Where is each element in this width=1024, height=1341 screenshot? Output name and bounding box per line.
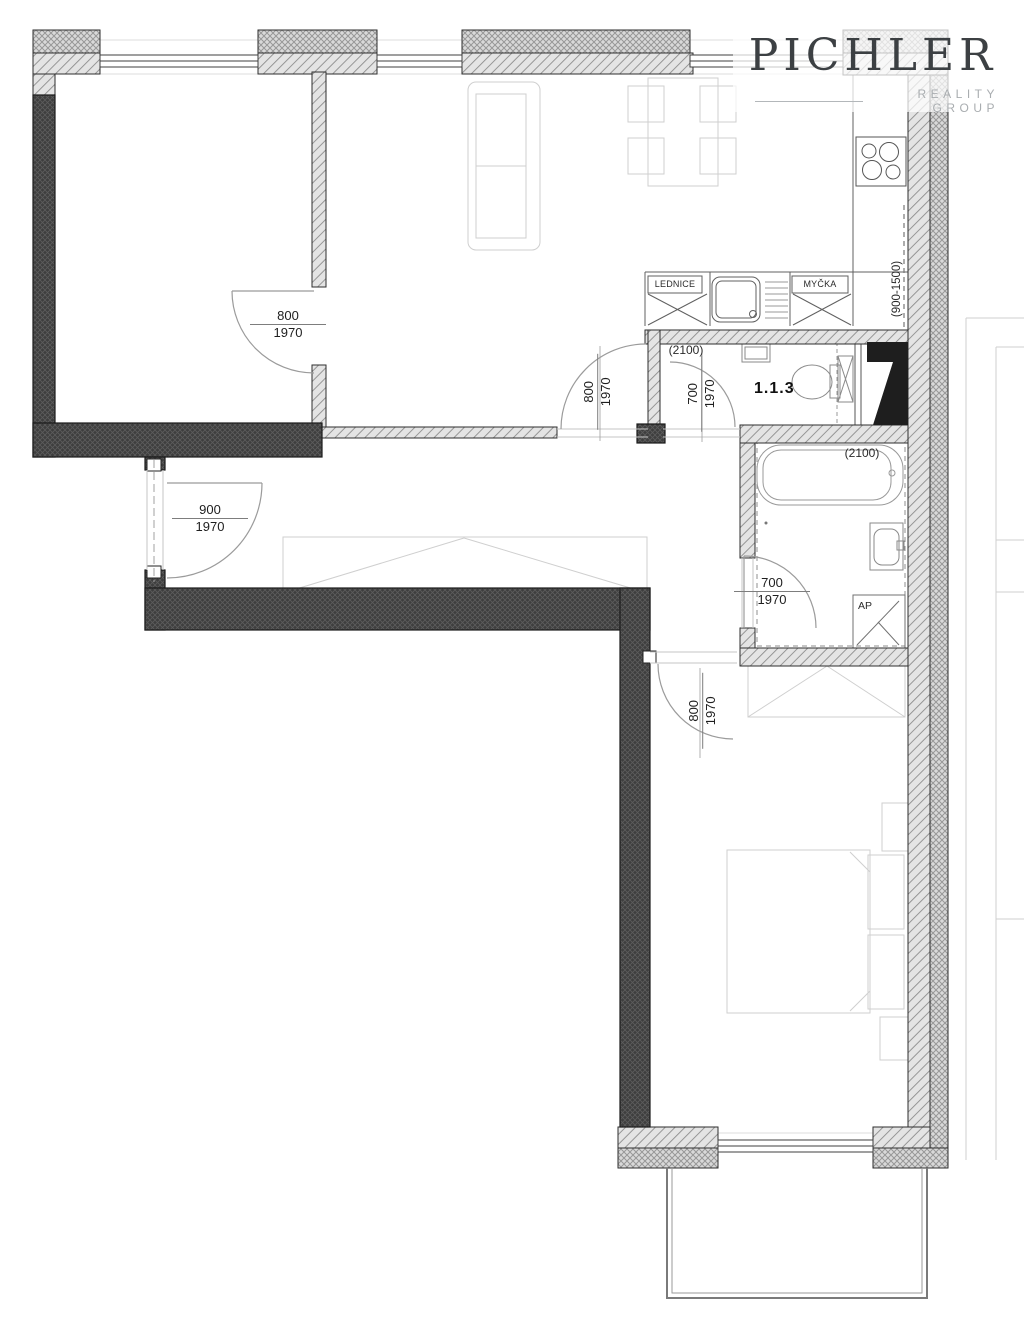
door-dim-entrance: 900 1970 — [172, 503, 248, 535]
door-height: 1970 — [704, 673, 719, 749]
sill-lines — [35, 40, 948, 1133]
bathroom-height-note: (2100) — [836, 446, 888, 460]
washing-machine-label: AP — [858, 600, 872, 612]
brand-name: PICHLER — [733, 34, 1013, 78]
window-living-left — [377, 55, 462, 67]
door-width: 800 — [582, 354, 598, 430]
fridge-label: LEDNICE — [648, 276, 702, 293]
logo-rule — [755, 101, 863, 102]
furniture — [283, 78, 908, 1060]
stove — [856, 137, 906, 186]
installation-shaft — [867, 342, 908, 425]
window-bedroom1 — [100, 55, 258, 67]
hall-wardrobe — [283, 537, 647, 593]
dishwasher-label: MYČKA — [792, 276, 848, 293]
nightstand — [880, 1017, 908, 1060]
kitchen-parapet-note: (900-1500) — [891, 245, 903, 333]
bathroom-fixtures — [757, 442, 905, 648]
bedroom-wardrobe — [748, 665, 905, 717]
door-width: 700 — [734, 576, 810, 592]
brand-subtitle: REALITY GROUP — [863, 87, 1013, 115]
door-dim-bathroom: 700 1970 — [734, 576, 810, 608]
door-dim-bedroom2: 800 1970 — [687, 673, 719, 749]
door-height: 1970 — [703, 356, 718, 432]
door-dim-bedroom1: 800 1970 — [250, 309, 326, 341]
sofa — [468, 82, 540, 250]
door-dim-living: 800 1970 — [582, 354, 614, 430]
wc-height-note: (2100) — [660, 343, 712, 357]
load-bearing-walls — [33, 95, 665, 1127]
door-width: 700 — [686, 356, 702, 432]
room-number: 1.1.3 — [754, 380, 795, 398]
kitchen-sink — [712, 277, 760, 322]
bathroom-dashed-outline — [757, 442, 905, 646]
door-height: 1970 — [599, 354, 614, 430]
floor-plan: 800 1970 900 1970 800 1970 700 1970 700 … — [0, 0, 1024, 1341]
bed — [727, 803, 908, 1060]
balcony — [667, 1168, 927, 1298]
door-frame-marks — [147, 459, 656, 663]
window-bedroom2 — [718, 1140, 873, 1152]
bathroom-washbasin — [870, 523, 904, 570]
nightstand — [882, 803, 908, 851]
toilet — [792, 365, 840, 399]
floor-plan-drawing — [0, 0, 1024, 1341]
door-width: 800 — [250, 309, 326, 325]
door-width: 800 — [687, 673, 703, 749]
brand-logo: PICHLER REALITY GROUP — [733, 26, 1013, 112]
door-height: 1970 — [250, 325, 326, 340]
door-width: 900 — [172, 503, 248, 519]
neighbor-unit-outline — [966, 318, 1024, 1160]
brand-subtitle-row: REALITY GROUP — [733, 87, 1013, 115]
door-height: 1970 — [734, 592, 810, 607]
sink-drainer — [765, 282, 788, 318]
dining-table-set — [628, 78, 736, 186]
door-swings — [167, 291, 816, 739]
door-dim-wc: 700 1970 — [686, 356, 718, 432]
door-height: 1970 — [172, 519, 248, 534]
